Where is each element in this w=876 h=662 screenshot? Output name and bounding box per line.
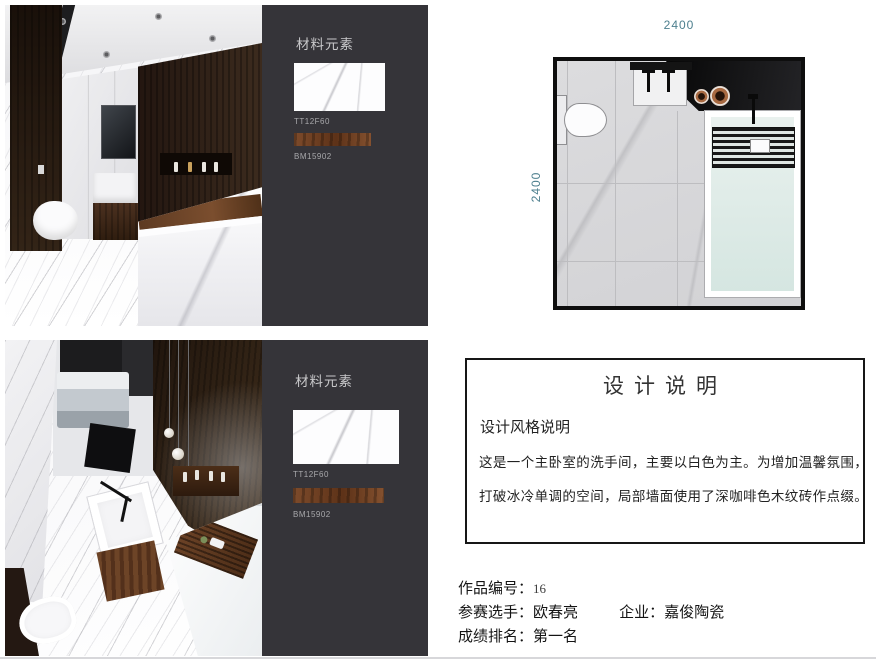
tile-seam	[557, 261, 705, 262]
pendant-light-icon	[172, 448, 184, 460]
render-block-top: 材料元素 TT12F60 BM15902	[5, 5, 428, 326]
plan-round-sink	[710, 86, 730, 106]
design-notes-body-line: 打破冰冷单调的空间，局部墙面使用了深咖啡色木纹砖作点缀。	[479, 485, 851, 505]
pendant-light-icon	[164, 428, 174, 438]
plan-shower-fixture	[642, 70, 655, 73]
rank-value: 第一名	[533, 628, 578, 645]
bathroom-render-perspective	[5, 5, 262, 326]
plan-faucet	[752, 98, 755, 124]
tile-code-label: TT12F60	[293, 470, 329, 479]
plan-round-sink	[694, 89, 709, 104]
wood-code-label: BM15902	[294, 152, 332, 161]
bottle-icon	[195, 470, 199, 480]
plan-bathtub	[704, 110, 801, 298]
contestant-segment: 参赛选手：欧春亮	[458, 601, 615, 625]
contestant-value: 欧春亮	[533, 604, 578, 621]
marble-tile-swatch	[293, 410, 399, 464]
dimension-label-top: 2400	[553, 18, 805, 32]
niche-shelf	[160, 153, 232, 175]
entry-info: 作品编号：16 参赛选手：欧春亮 企业：嘉俊陶瓷 成绩排名：第一名	[458, 577, 724, 649]
bottle-icon	[214, 162, 218, 172]
plan-toilet-bowl	[564, 103, 607, 137]
material-panel-title: 材料元素	[295, 370, 353, 390]
bottle-icon	[202, 162, 206, 172]
bottle-icon	[174, 162, 178, 172]
render-block-bottom: 材料元素 TT12F60 BM15902	[5, 340, 428, 656]
bathroom-render-topdown	[5, 340, 262, 656]
tile-seam	[677, 111, 678, 306]
spotlight-icon	[209, 35, 216, 42]
bottle-icon	[209, 471, 213, 481]
bedroom-doorway	[53, 340, 159, 476]
design-notes-box: 设计说明 设计风格说明 这是一个主卧室的洗手间，主要以白色为主。为增加温馨氛围，…	[465, 358, 865, 544]
vanity-basin	[93, 173, 136, 203]
entry-number-row: 作品编号：16	[458, 577, 724, 601]
rank-row: 成绩排名：第一名	[458, 625, 724, 649]
marble-tile-swatch	[294, 63, 385, 111]
design-style-heading: 设计风格说明	[480, 416, 863, 437]
floor-plan	[553, 57, 805, 310]
bench	[84, 423, 136, 473]
spotlight-icon	[155, 13, 162, 20]
wood-tile-swatch	[294, 133, 371, 146]
pendant-cord	[178, 340, 179, 450]
plant-icon	[199, 535, 208, 544]
wood-code-label: BM15902	[293, 510, 331, 519]
company-label: 企业：	[619, 604, 664, 621]
plan-shower-rail	[630, 62, 692, 70]
design-notes-body-line: 这是一个主卧室的洗手间，主要以白色为主。为增加温馨氛围，	[479, 451, 851, 471]
design-notes-title: 设计说明	[467, 370, 863, 400]
plan-shower-fixture	[667, 70, 670, 92]
candle-icon	[188, 162, 192, 172]
pendant-cord	[169, 340, 170, 430]
contestant-row: 参赛选手：欧春亮 企业：嘉俊陶瓷	[458, 601, 724, 625]
spotlight-icon	[103, 51, 110, 58]
entry-number-label: 作品编号：	[458, 580, 533, 597]
bottom-divider	[0, 657, 876, 659]
entry-number-value: 16	[533, 581, 546, 596]
wall-hung-toilet	[33, 201, 78, 240]
bed	[57, 372, 129, 428]
plan-shower-fixture	[662, 70, 675, 73]
tile-code-label: TT12F60	[294, 117, 330, 126]
bottle-icon	[221, 472, 225, 482]
wall-shelf	[173, 466, 239, 496]
material-panel-bottom: 材料元素 TT12F60 BM15902	[262, 340, 428, 656]
plan-shower-fixture	[647, 70, 650, 92]
plan-soap-dish	[750, 139, 770, 153]
wall-switch	[38, 165, 44, 174]
plan-faucet-handle	[748, 94, 758, 99]
tile-seam	[557, 183, 705, 184]
bottle-icon	[183, 472, 187, 482]
rank-label: 成绩排名：	[458, 628, 533, 645]
vanity-cabinet	[93, 203, 138, 240]
wood-tile-swatch	[293, 488, 384, 503]
dimension-label-left: 2400	[529, 162, 543, 212]
material-panel-top: 材料元素 TT12F60 BM15902	[262, 5, 428, 326]
company-value: 嘉俊陶瓷	[664, 604, 724, 621]
plan-shower-enclosure	[633, 62, 687, 106]
mirror	[101, 105, 136, 159]
material-panel-title: 材料元素	[296, 33, 354, 53]
pendant-cord	[188, 340, 189, 468]
contestant-label: 参赛选手：	[458, 604, 533, 621]
towel-icon	[209, 537, 225, 549]
presentation-page: 材料元素 TT12F60 BM15902 2400 2400	[0, 0, 876, 662]
